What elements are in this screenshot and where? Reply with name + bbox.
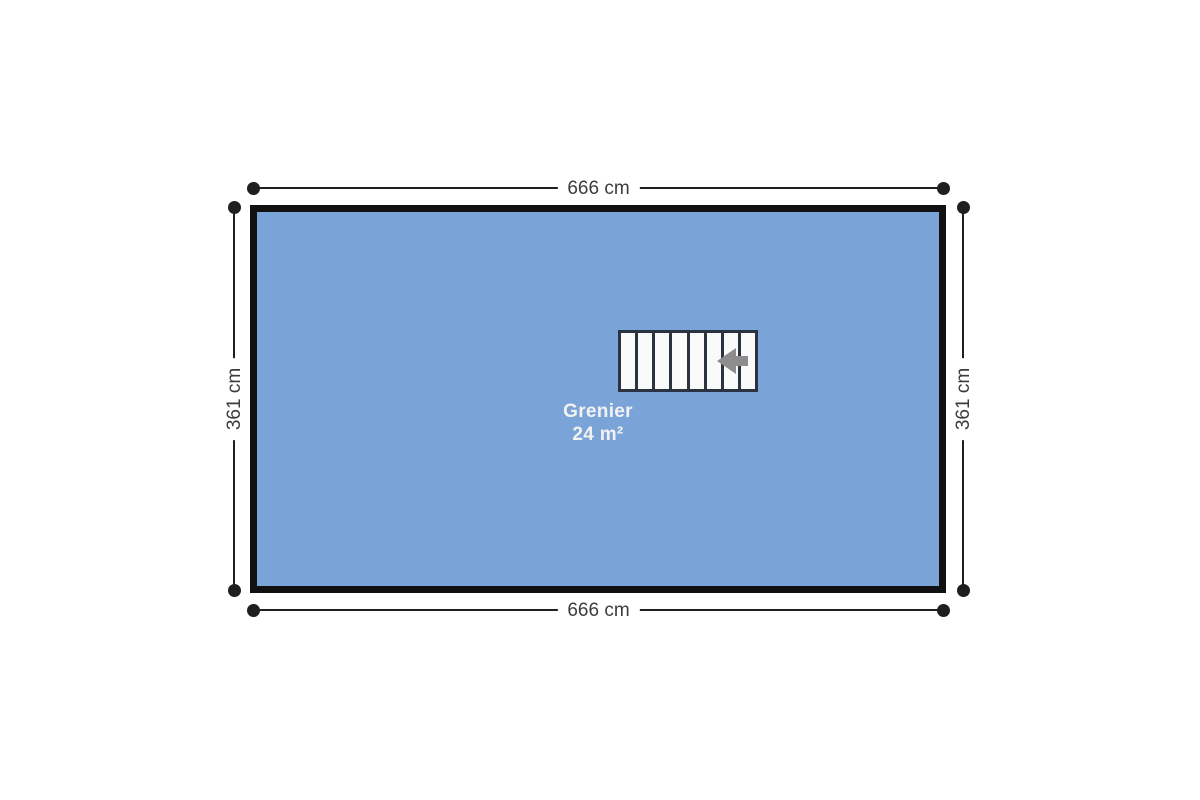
- dimension-right: 361 cm: [957, 201, 970, 597]
- stair-tread: [672, 333, 686, 389]
- staircase[interactable]: [618, 330, 758, 392]
- floor-plan-canvas: 666 cm 666 cm 361 cm 361 cm Grenier: [0, 0, 1200, 800]
- dimension-endpoint-dot: [957, 584, 970, 597]
- stair-tread: [621, 333, 635, 389]
- dimension-endpoint-dot: [228, 584, 241, 597]
- dimension-left: 361 cm: [228, 201, 241, 597]
- stair-tread: [638, 333, 652, 389]
- dimension-label-top: 666 cm: [557, 178, 639, 200]
- room-name: Grenier: [257, 400, 939, 423]
- dimension-endpoint-dot: [937, 182, 950, 195]
- room-grenier[interactable]: Grenier 24 m²: [250, 205, 946, 593]
- room-area: 24 m²: [257, 423, 939, 446]
- dimension-label-bottom: 666 cm: [557, 600, 639, 622]
- dimension-endpoint-dot: [937, 604, 950, 617]
- room-label: Grenier 24 m²: [257, 400, 939, 446]
- stairs-direction-arrow-icon: [717, 346, 749, 376]
- stair-tread: [655, 333, 669, 389]
- dimension-top: 666 cm: [247, 182, 950, 195]
- dimension-bottom: 666 cm: [247, 604, 950, 617]
- dimension-label-right: 361 cm: [953, 358, 975, 440]
- dimension-label-left: 361 cm: [224, 358, 246, 440]
- stair-tread: [690, 333, 704, 389]
